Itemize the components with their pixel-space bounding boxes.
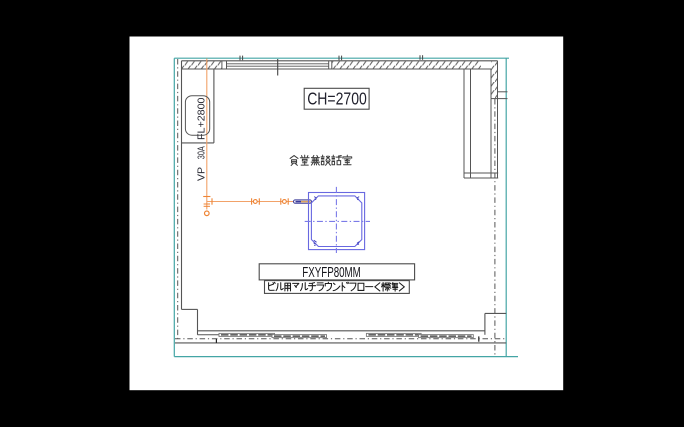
- svg-text:FXYFP80MM: FXYFP80MM: [302, 264, 361, 281]
- svg-text:FL+2800: FL+2800: [195, 97, 207, 140]
- svg-text:VP: VP: [195, 167, 207, 181]
- svg-text:30A: 30A: [195, 146, 207, 159]
- svg-text:CH=2700: CH=2700: [307, 88, 367, 108]
